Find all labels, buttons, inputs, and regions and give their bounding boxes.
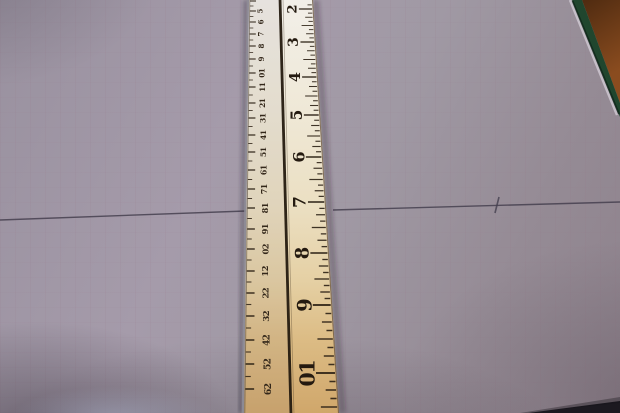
svg-text:4: 4 (259, 135, 268, 140)
svg-text:1: 1 (258, 98, 267, 103)
svg-text:3: 3 (262, 316, 272, 322)
cm-label-11: 11 (258, 82, 267, 92)
svg-text:2: 2 (262, 293, 272, 299)
cm-label-19: 19 (260, 224, 270, 235)
svg-text:7: 7 (291, 196, 311, 208)
svg-text:2: 2 (262, 358, 273, 364)
cm-label-9: 9 (257, 56, 266, 61)
svg-text:9: 9 (260, 228, 270, 234)
inch-label-2: 2 (285, 4, 300, 13)
svg-text:6: 6 (259, 169, 268, 175)
svg-text:1: 1 (260, 184, 269, 190)
svg-text:5: 5 (288, 110, 306, 121)
cm-label-14: 14 (259, 130, 268, 140)
inch-label-10: 10 (296, 359, 320, 386)
inch-label-6: 6 (289, 151, 308, 162)
svg-text:8: 8 (292, 247, 313, 260)
inch-label-5: 5 (288, 110, 306, 121)
cm-label-21: 21 (261, 265, 271, 276)
cm-label-25: 25 (262, 358, 273, 370)
cm-label-26: 26 (263, 383, 274, 395)
cm-label-22: 22 (262, 287, 272, 298)
svg-text:2: 2 (261, 243, 271, 249)
svg-text:7: 7 (257, 31, 266, 36)
svg-text:8: 8 (257, 43, 266, 48)
cm-label-10: 10 (258, 68, 267, 78)
svg-text:5: 5 (262, 364, 273, 370)
svg-text:6: 6 (263, 389, 274, 395)
cm-label-20: 20 (261, 243, 271, 254)
cm-label-7: 7 (257, 31, 266, 36)
svg-text:3: 3 (258, 118, 267, 123)
cm-label-17: 17 (260, 184, 269, 195)
svg-text:8: 8 (260, 207, 270, 213)
svg-text:0: 0 (261, 249, 271, 255)
pencil-line-right (333, 202, 620, 210)
svg-text:2: 2 (261, 265, 271, 271)
svg-text:1: 1 (261, 271, 271, 277)
inch-label-8: 8 (292, 247, 313, 260)
cm-label-13: 13 (258, 113, 267, 123)
cm-label-15: 15 (259, 147, 268, 157)
svg-text:1: 1 (259, 130, 268, 135)
cm-label-24: 24 (262, 334, 272, 346)
cm-label-8: 8 (257, 43, 266, 48)
svg-text:0: 0 (258, 73, 267, 78)
svg-text:1: 1 (259, 147, 268, 152)
svg-text:2: 2 (262, 334, 272, 340)
svg-text:6: 6 (289, 151, 308, 162)
svg-text:1: 1 (258, 68, 267, 73)
inch-label-7: 7 (291, 196, 311, 208)
svg-text:9: 9 (293, 298, 316, 311)
cm-label-12: 12 (258, 98, 267, 108)
cm-label-16: 16 (259, 165, 268, 175)
svg-text:2: 2 (263, 383, 274, 389)
svg-text:1: 1 (260, 203, 270, 209)
svg-text:1: 1 (258, 113, 267, 118)
cm-label-6: 6 (256, 19, 265, 24)
svg-text:1: 1 (296, 359, 320, 373)
svg-text:1: 1 (258, 82, 267, 87)
svg-text:2: 2 (262, 287, 272, 293)
svg-text:1: 1 (258, 87, 267, 92)
svg-text:5: 5 (257, 8, 265, 13)
scene-svg: 5678910111213141516171819202122232425262… (0, 0, 620, 413)
inch-label-9: 9 (293, 298, 316, 311)
svg-text:2: 2 (285, 4, 300, 13)
cm-label-18: 18 (260, 203, 270, 214)
svg-text:4: 4 (262, 340, 272, 346)
svg-text:9: 9 (257, 56, 266, 61)
svg-text:6: 6 (256, 19, 265, 24)
svg-text:2: 2 (258, 103, 267, 108)
svg-text:7: 7 (260, 189, 269, 195)
cm-label-23: 23 (262, 310, 272, 322)
svg-text:1: 1 (260, 224, 270, 230)
svg-text:3: 3 (286, 37, 302, 47)
svg-text:2: 2 (262, 310, 272, 316)
photo-ruler-on-graph-paper: 5678910111213141516171819202122232425262… (0, 0, 620, 413)
inch-label-3: 3 (286, 37, 302, 47)
pencil-line-left (0, 211, 246, 220)
svg-text:4: 4 (287, 72, 304, 82)
inch-label-4: 4 (287, 72, 304, 82)
svg-text:0: 0 (296, 372, 320, 386)
cm-label-5: 5 (257, 8, 265, 13)
svg-text:1: 1 (259, 165, 268, 170)
svg-text:5: 5 (259, 152, 268, 157)
